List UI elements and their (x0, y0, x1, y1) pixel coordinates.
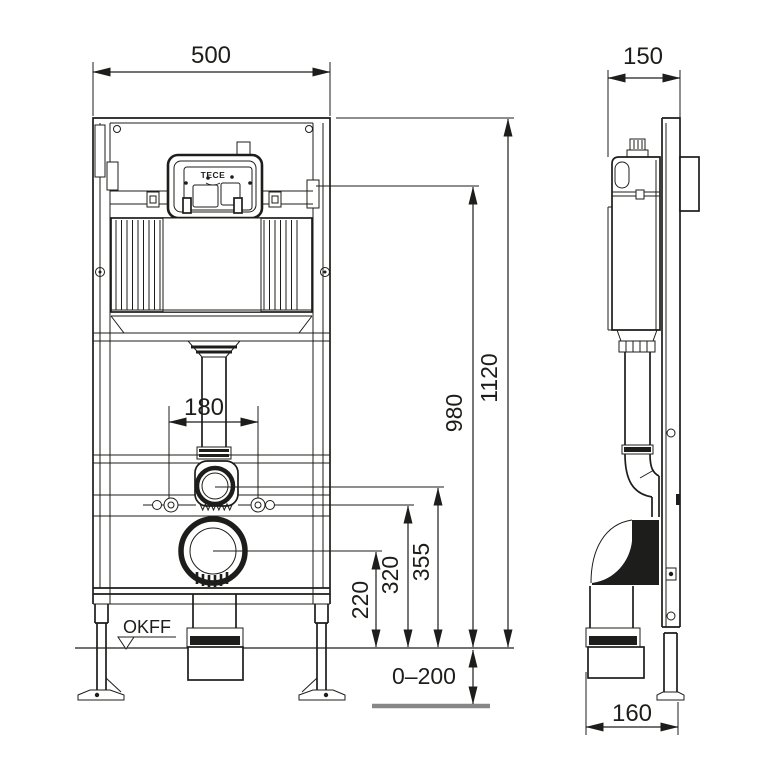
rail-foot-plate (657, 692, 684, 700)
plate-dot (184, 181, 188, 185)
flush-coupling-band (624, 447, 651, 452)
rail-marker-dot (669, 572, 673, 576)
flush-connector-height-label: 355 (408, 543, 434, 581)
rail-end-cap-left (107, 162, 118, 190)
brand-logo: TECE (201, 170, 226, 180)
rail-clip-right (269, 192, 281, 207)
outlet-offset-label: 160 (612, 700, 652, 727)
tank-latch (636, 190, 644, 199)
plate-top-tab (237, 142, 250, 155)
coupling-band (199, 449, 229, 452)
foot-anchor-hole-left (95, 693, 99, 697)
technical-drawing-page: 500 TECE (0, 0, 780, 780)
waste-seal-band (589, 636, 637, 645)
drain-seal-band (190, 636, 240, 645)
plate-housing (168, 155, 262, 218)
outlet-height-label: 220 (347, 581, 373, 619)
floor-level-label: OKFF (123, 617, 171, 637)
plate-mount-tab-left (183, 198, 191, 213)
side-fixing-hole-right-dot (324, 271, 327, 274)
bolt-washer-left (153, 501, 162, 510)
plate-dot (248, 181, 252, 185)
rail-clip-left (147, 192, 159, 207)
bolt-left (164, 498, 178, 512)
actuation-height-label: 980 (441, 394, 467, 432)
bolt-height-label: 320 (377, 556, 403, 594)
drawing-background (0, 0, 780, 780)
waste-sleeve (588, 647, 644, 678)
foot-anchor-hole-right (324, 693, 328, 697)
drain-sleeve (188, 647, 243, 680)
plate-mount-tab-right (234, 198, 242, 213)
plate-dot (230, 175, 234, 179)
side-fixing-hole-left-dot (99, 271, 102, 274)
installation-frame-drawing: 500 TECE (0, 0, 780, 780)
floor-buildup-label: 0–200 (392, 663, 456, 689)
bolt-washer-right (266, 501, 275, 510)
cistern-tank-profile (612, 157, 660, 330)
rail-latch (676, 494, 680, 505)
flush-pipe-coupling (197, 447, 231, 459)
frame-depth-label: 150 (623, 43, 663, 70)
wall-bracket-front (95, 125, 105, 177)
cistern-side (608, 139, 660, 352)
cistern (96, 218, 330, 333)
bolt-spacing-label: 180 (184, 394, 224, 421)
wall-bracket-side (680, 157, 699, 211)
frame-width-label: 500 (191, 42, 231, 69)
tank-outlet-flange (619, 341, 655, 352)
plate-dot (206, 176, 210, 180)
frame-height-label: 1120 (476, 353, 502, 402)
bolt-right (251, 498, 265, 512)
cistern-access-panel (163, 218, 261, 312)
